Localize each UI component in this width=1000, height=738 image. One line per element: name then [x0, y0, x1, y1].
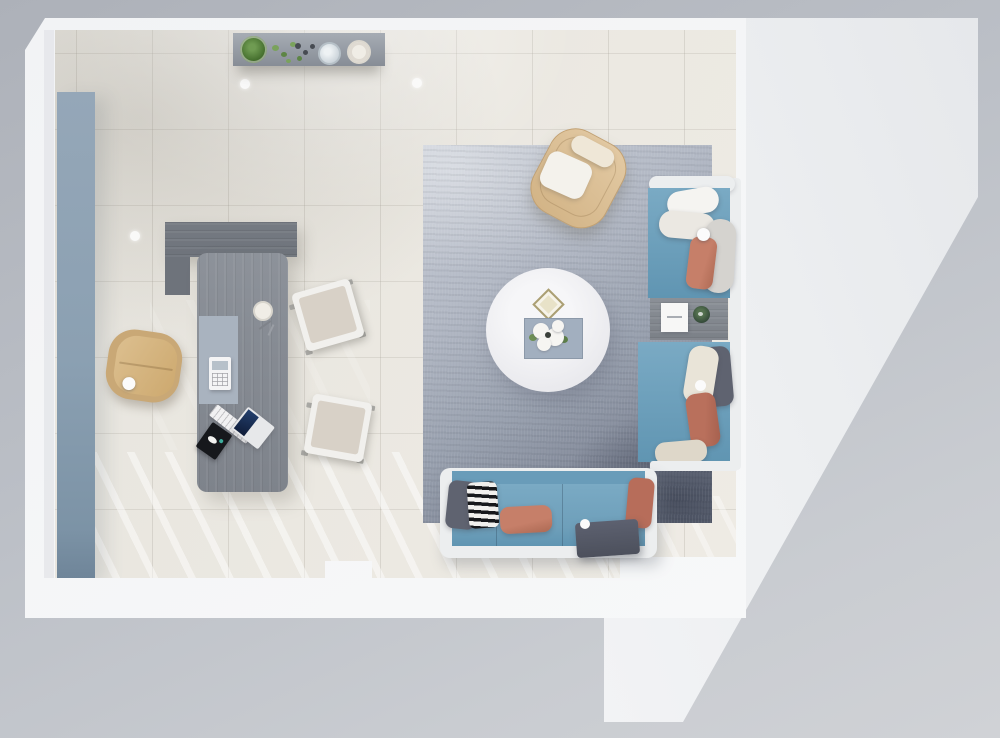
decor-berry — [303, 50, 308, 55]
notebook-accent-dot — [218, 438, 224, 444]
potted-plant — [240, 36, 267, 63]
phone-keypad — [212, 373, 228, 386]
coral-pillow-wide — [499, 505, 552, 535]
side-table-planter — [693, 306, 710, 323]
credenza — [165, 222, 297, 257]
sofa-lower-ledge — [650, 461, 738, 471]
plant-sprig-leaf — [286, 59, 291, 63]
phone-screen — [212, 361, 228, 370]
planter-highlight — [698, 312, 703, 316]
flower-center — [545, 332, 551, 338]
guest-chair-2 — [303, 393, 373, 463]
credenza-return — [165, 257, 190, 295]
ceiling-light-dot-1 — [240, 79, 250, 89]
ceiling-light-dot-2 — [412, 78, 422, 88]
decor-ball-upper — [697, 228, 710, 241]
notebook-logo — [207, 435, 219, 446]
plant-sprig-leaf — [297, 56, 302, 61]
render-canvas — [0, 0, 1000, 738]
side-table-card — [661, 303, 688, 332]
decor-berry — [295, 43, 301, 49]
storage-panel — [57, 92, 95, 578]
wall-shadow-line — [44, 30, 54, 578]
office-chair — [102, 326, 185, 406]
plant-sprig-leaf — [272, 45, 279, 51]
desk-phone — [209, 357, 231, 390]
card-print-line — [667, 316, 682, 318]
decor-dish — [347, 40, 371, 64]
striped-pillow — [466, 481, 499, 529]
guest-chair-cushion — [310, 400, 365, 455]
ceiling-light-dot-3 — [130, 231, 140, 241]
white-flower — [552, 320, 564, 332]
decor-ball-lower — [695, 380, 706, 391]
decor-berry — [310, 44, 315, 49]
decor-ball-ottoman — [580, 519, 590, 529]
glass-vase — [318, 42, 341, 65]
plant-sprig-leaf — [281, 52, 287, 57]
white-flower — [537, 337, 551, 351]
coffee-cup — [253, 301, 273, 321]
